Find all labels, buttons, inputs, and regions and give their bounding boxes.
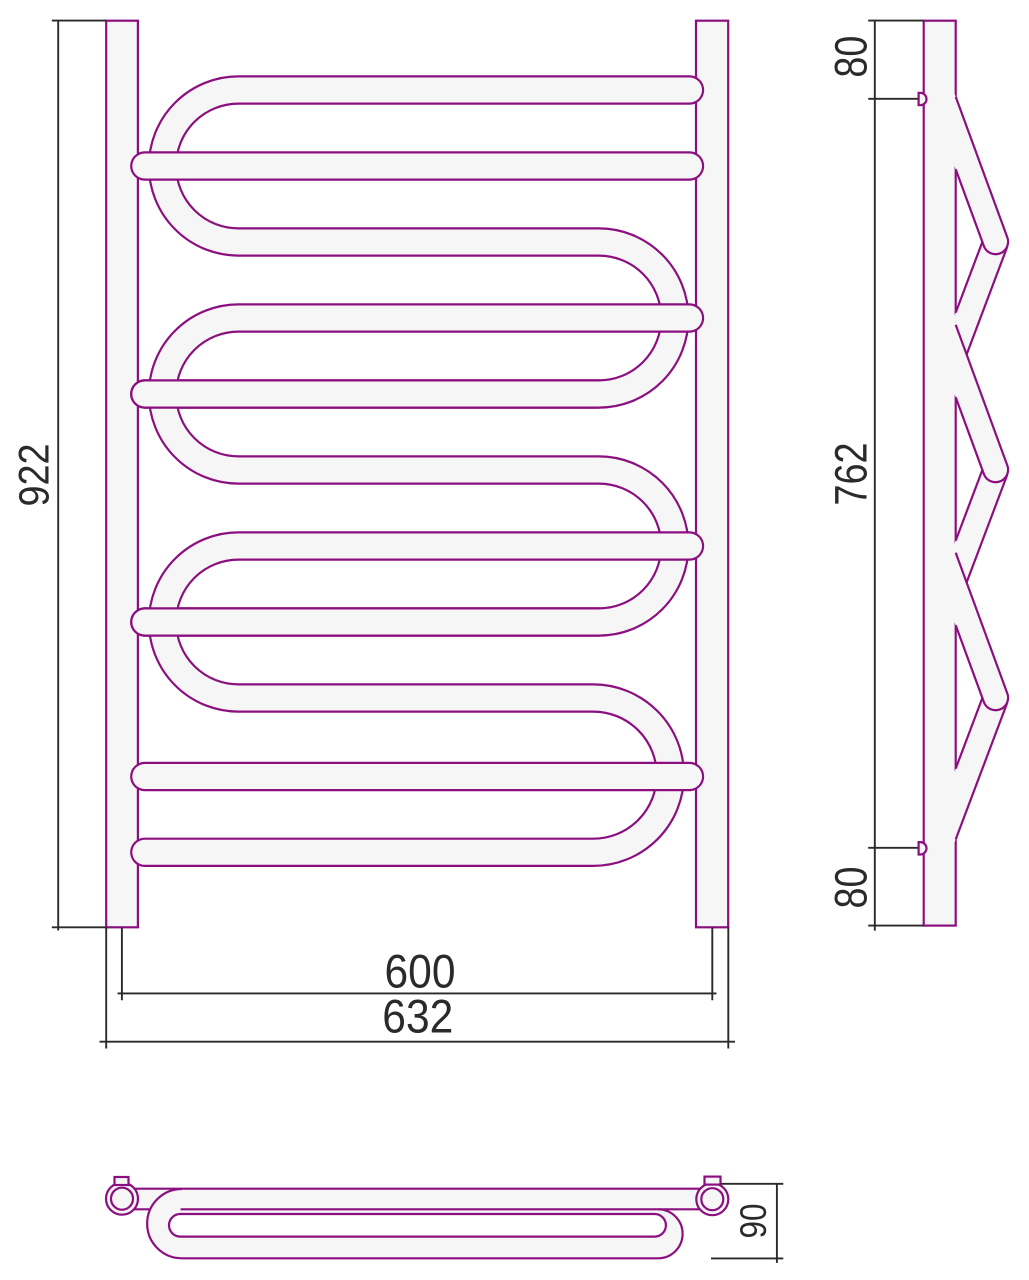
svg-text:762: 762: [826, 443, 877, 506]
svg-text:922: 922: [11, 444, 59, 507]
svg-text:80: 80: [826, 867, 877, 909]
svg-text:90: 90: [733, 1204, 774, 1239]
svg-text:80: 80: [826, 36, 877, 78]
svg-text:632: 632: [382, 990, 453, 1043]
